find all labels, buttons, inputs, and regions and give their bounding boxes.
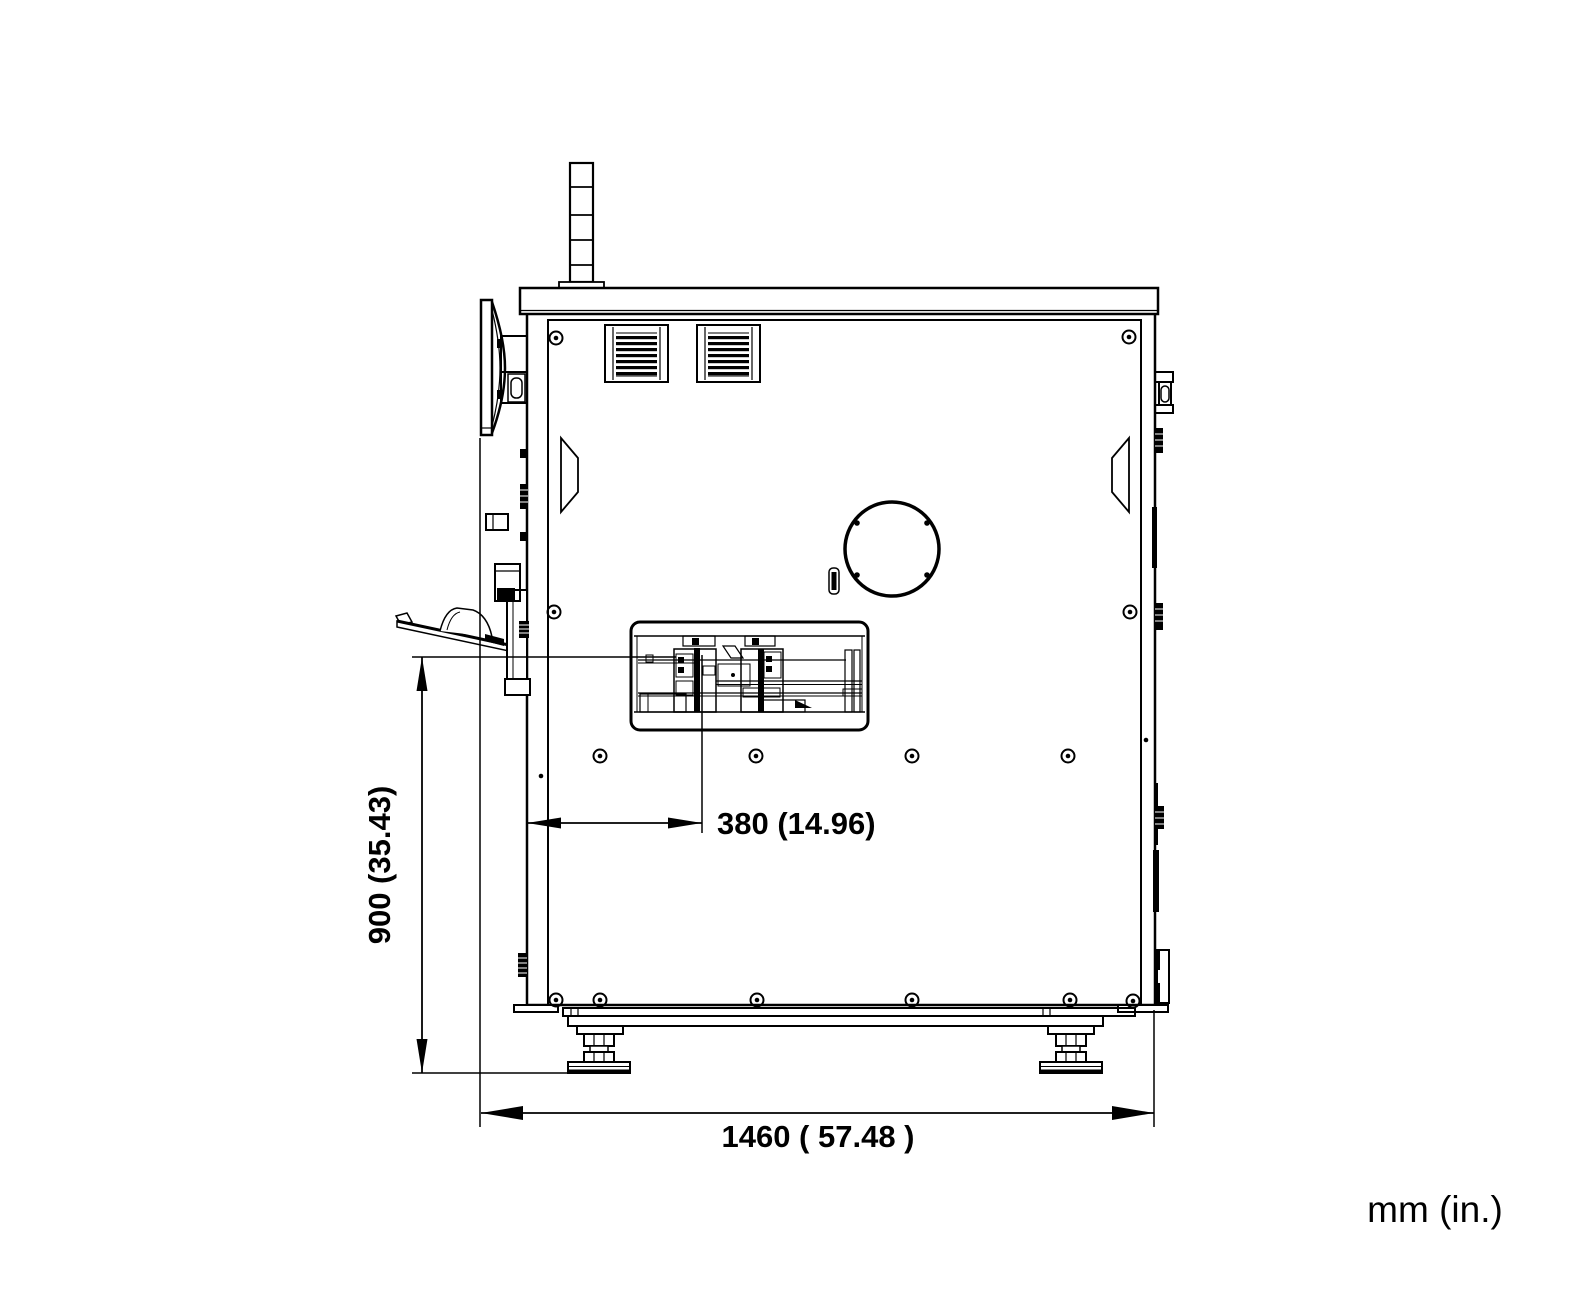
screw-dot bbox=[1144, 738, 1149, 743]
side-peg bbox=[486, 514, 508, 530]
screw bbox=[550, 332, 563, 345]
vent-grilles bbox=[605, 325, 760, 382]
right-latch bbox=[1155, 372, 1173, 382]
screw-dot bbox=[539, 774, 544, 779]
units-label: mm (in.) bbox=[1367, 1189, 1503, 1230]
fan-opening bbox=[829, 502, 939, 596]
mount-latch bbox=[511, 378, 522, 398]
arrowhead-up-icon bbox=[417, 657, 428, 691]
offset-dimension-label: 380 (14.96) bbox=[717, 806, 876, 841]
machine-side-view-drawing: 1460 ( 57.48 ) 900 (35.43) 380 (14.96) m… bbox=[0, 0, 1576, 1301]
right-edge-fittings bbox=[1118, 372, 1173, 1012]
screw bbox=[750, 750, 763, 763]
height-dimension-label: 900 (35.43) bbox=[362, 786, 397, 945]
arrowhead-left-icon bbox=[481, 1106, 523, 1120]
dimension-width: 1460 ( 57.48 ) bbox=[480, 438, 1154, 1154]
leveling-foot-right bbox=[1040, 1034, 1102, 1073]
width-dimension-label: 1460 ( 57.48 ) bbox=[721, 1119, 914, 1154]
top-cap-panel bbox=[520, 288, 1158, 314]
screw bbox=[1124, 606, 1137, 619]
machine bbox=[396, 163, 1173, 1073]
left-base-flange bbox=[514, 1005, 558, 1012]
technical-drawing-page: 1460 ( 57.48 ) 900 (35.43) 380 (14.96) m… bbox=[0, 0, 1576, 1301]
keyboard-tray bbox=[396, 590, 530, 695]
screw bbox=[1123, 331, 1136, 344]
screw bbox=[1062, 750, 1075, 763]
monitor-assembly bbox=[481, 300, 527, 435]
screw bbox=[548, 606, 561, 619]
left-recessed-grip bbox=[561, 438, 578, 512]
arrowhead-down-icon bbox=[417, 1039, 428, 1073]
right-recessed-grip bbox=[1112, 438, 1129, 512]
monitor-profile bbox=[481, 300, 492, 435]
mechanism-window bbox=[631, 622, 868, 730]
signal-tower-light bbox=[559, 163, 604, 288]
leveling-feet bbox=[568, 1034, 1102, 1073]
screw bbox=[906, 750, 919, 763]
vent-grille-left bbox=[605, 325, 668, 382]
arrowhead-right-icon bbox=[1112, 1106, 1154, 1120]
vent-grille-right bbox=[697, 325, 760, 382]
side-grips bbox=[561, 438, 1129, 512]
base-frame bbox=[563, 1008, 1135, 1034]
arrowhead-left-icon bbox=[527, 818, 561, 829]
right-hinge-lower bbox=[1155, 603, 1163, 630]
leveling-foot-left bbox=[568, 1034, 630, 1073]
screw bbox=[594, 750, 607, 763]
dimensions: 1460 ( 57.48 ) 900 (35.43) 380 (14.96) m… bbox=[362, 438, 1503, 1230]
arrowhead-right-icon bbox=[668, 818, 702, 829]
